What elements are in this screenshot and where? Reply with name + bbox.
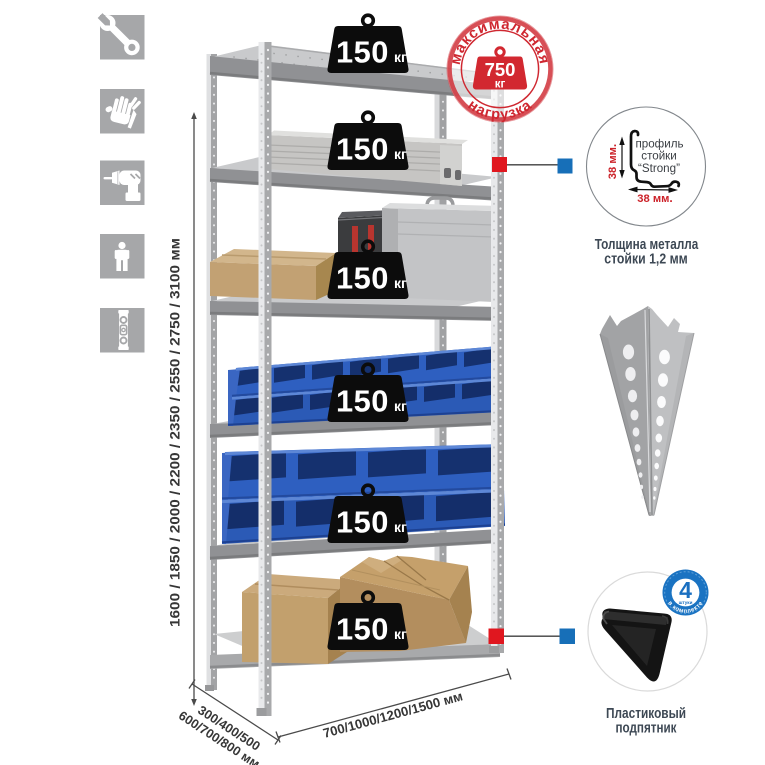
svg-text:стойки: стойки [641, 150, 676, 163]
svg-text:38 мм.: 38 мм. [605, 144, 619, 179]
svg-text:1600 / 1850 / 2000 / 2200 / 23: 1600 / 1850 / 2000 / 2200 / 2350 / 2550 … [168, 238, 183, 627]
svg-text:кг: кг [495, 79, 506, 91]
svg-text:штуки: штуки [679, 600, 693, 605]
svg-text:700/1000/1200/1500 мм: 700/1000/1200/1500 мм [321, 688, 464, 741]
svg-text:“Strong”: “Strong” [638, 162, 680, 175]
svg-text:38 мм.: 38 мм. [637, 191, 672, 205]
svg-text:подпятник: подпятник [616, 721, 678, 737]
svg-text:750: 750 [485, 59, 516, 80]
svg-text:стойки 1,2 мм: стойки 1,2 мм [604, 252, 688, 268]
